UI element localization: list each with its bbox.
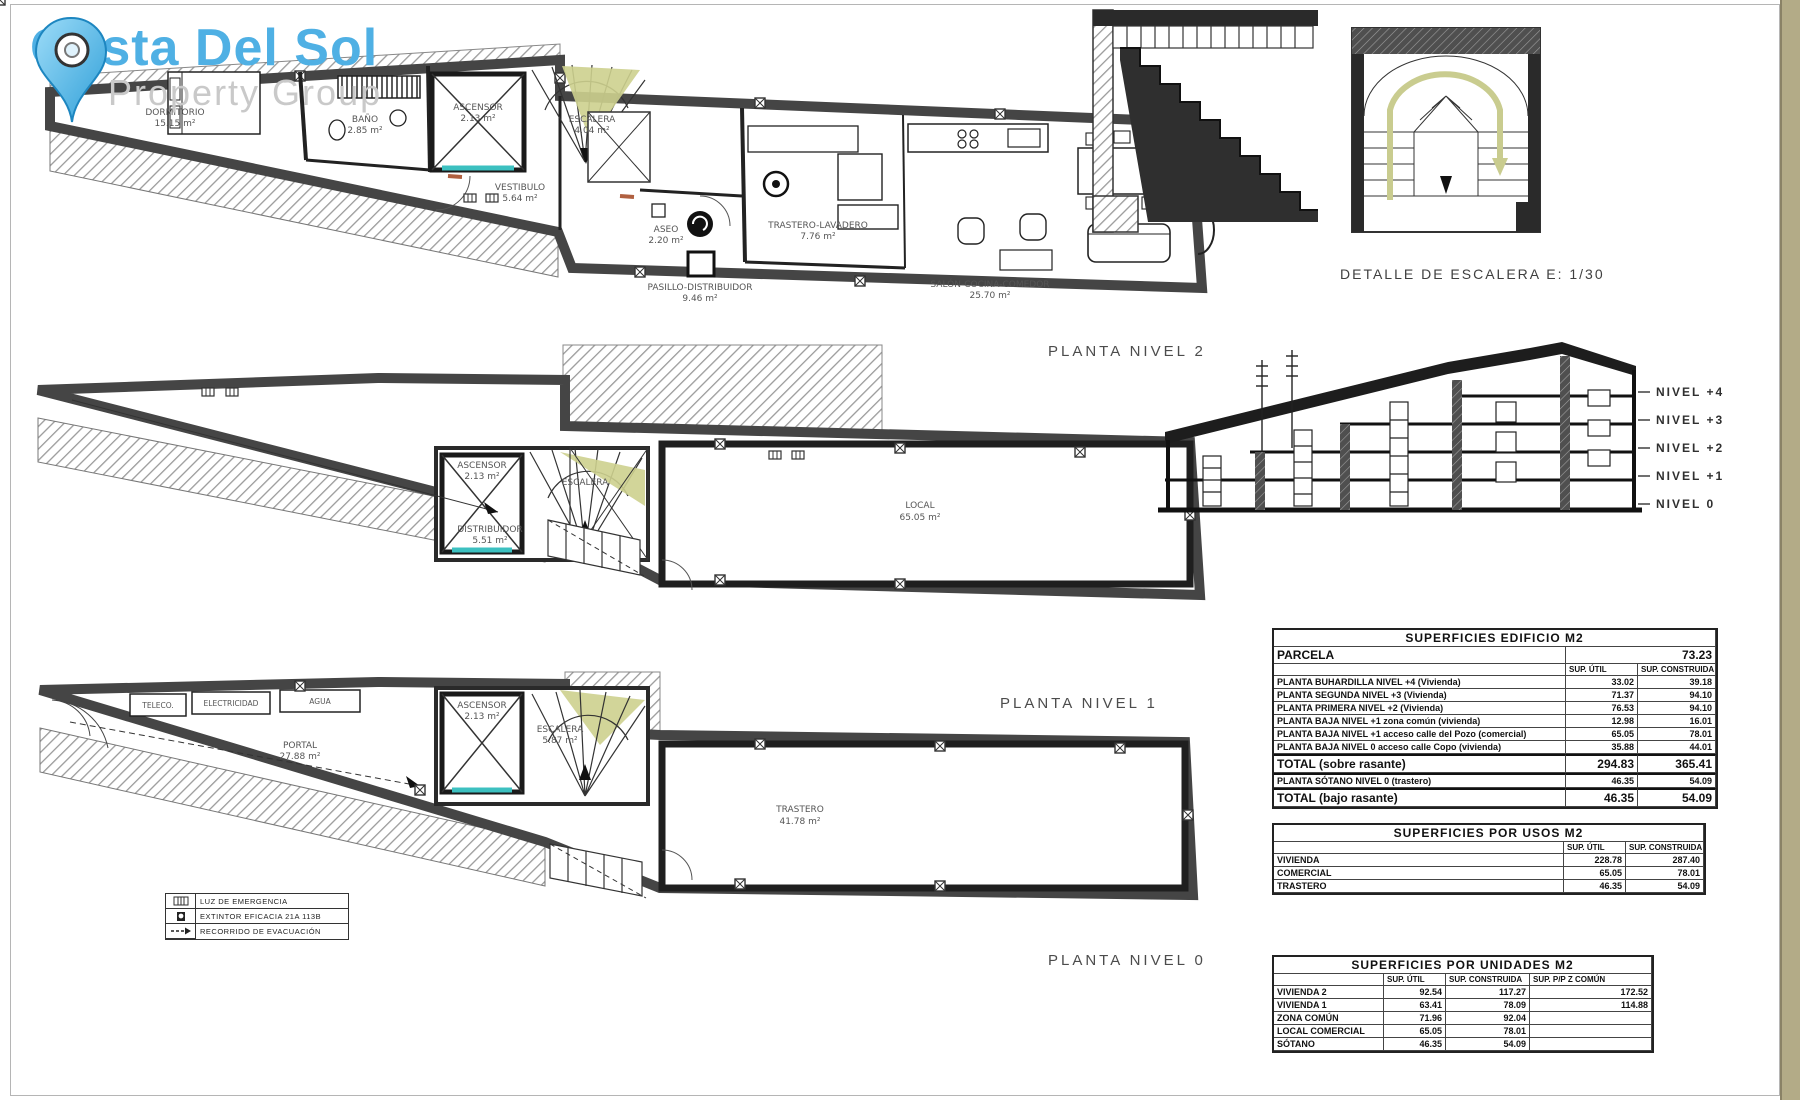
table-row: ZONA COMÚN bbox=[1274, 1012, 1384, 1025]
svg-text:5.87 m²: 5.87 m² bbox=[542, 736, 578, 746]
svg-text:65.05 m²: 65.05 m² bbox=[899, 513, 940, 523]
svg-text:5.64 m²: 5.64 m² bbox=[502, 194, 538, 204]
table-row: TRASTERO bbox=[1274, 880, 1564, 893]
svg-text:2.20 m²: 2.20 m² bbox=[648, 236, 684, 246]
room-label: PASILLO-DISTRIBUIDOR bbox=[647, 283, 752, 293]
table-title: SUPERFICIES POR UNIDADES M2 bbox=[1274, 957, 1652, 974]
map-pin-icon bbox=[26, 14, 116, 129]
legend: LUZ DE EMERGENCIA EXTINTOR EFICACIA 21A … bbox=[165, 893, 349, 940]
table-row: PLANTA SÓTANO NIVEL 0 (trastero) bbox=[1274, 773, 1566, 788]
table-superficies-usos: SUPERFICIES POR USOS M2 SUP. ÚTIL SUP. C… bbox=[1272, 823, 1706, 895]
svg-text:27.88 m²: 27.88 m² bbox=[279, 752, 320, 762]
legend-item-label: LUZ DE EMERGENCIA bbox=[196, 894, 348, 909]
table-row: PLANTA BAJA NIVEL +1 acceso calle del Po… bbox=[1274, 728, 1566, 741]
room-label: TRASTERO bbox=[775, 805, 824, 815]
plan-level1-label: PLANTA NIVEL 1 bbox=[1000, 695, 1158, 712]
building-section bbox=[1158, 342, 1650, 510]
svg-text:5.51 m²: 5.51 m² bbox=[472, 536, 508, 546]
room-label: ESCALERA bbox=[537, 725, 584, 735]
table-row: PLANTA PRIMERA NIVEL +2 (Vivienda) bbox=[1274, 702, 1566, 715]
emergency-light-icon bbox=[166, 894, 196, 909]
stair-detail-caption: DETALLE DE ESCALERA E: 1/30 bbox=[1340, 266, 1605, 282]
room-label: AGUA bbox=[309, 697, 331, 706]
svg-text:4.04 m²: 4.04 m² bbox=[574, 126, 610, 136]
room-label: ELECTRICIDAD bbox=[204, 699, 259, 708]
table-row: PLANTA SEGUNDA NIVEL +3 (Vivienda) bbox=[1274, 689, 1566, 702]
section-level-2: NIVEL +2 bbox=[1656, 441, 1724, 455]
table-title: SUPERFICIES EDIFICIO M2 bbox=[1274, 630, 1716, 647]
page-edge-strip bbox=[1780, 0, 1800, 1100]
table-row: VIVIENDA 1 bbox=[1274, 999, 1384, 1012]
table-title: SUPERFICIES POR USOS M2 bbox=[1274, 825, 1704, 842]
svg-text:9.46 m²: 9.46 m² bbox=[682, 294, 718, 304]
section-level-3: NIVEL +3 bbox=[1656, 413, 1724, 427]
room-label: ASCENSOR bbox=[457, 461, 507, 471]
room-label: ESCALERA bbox=[569, 115, 616, 125]
table-row: PLANTA BAJA NIVEL 0 acceso calle Copo (v… bbox=[1274, 741, 1566, 754]
room-label: ESCALERA bbox=[562, 478, 609, 488]
plan-level1 bbox=[38, 345, 1200, 595]
room-label: VESTIBULO bbox=[495, 183, 545, 193]
legend-item-label: EXTINTOR EFICACIA 21A 113B bbox=[196, 909, 348, 924]
total-sobre-rasante: TOTAL (sobre rasante) bbox=[1274, 754, 1566, 773]
parcela-label: PARCELA bbox=[1274, 647, 1566, 664]
svg-text:2.13 m²: 2.13 m² bbox=[464, 472, 500, 482]
table-superficies-unidades: SUPERFICIES POR UNIDADES M2 SUP. ÚTIL SU… bbox=[1272, 955, 1654, 1053]
table-row: PLANTA BUHARDILLA NIVEL +4 (Vivienda) bbox=[1274, 676, 1566, 689]
svg-text:2.85 m²: 2.85 m² bbox=[347, 126, 383, 136]
table-row: VIVIENDA bbox=[1274, 854, 1564, 867]
plan-level0-label: PLANTA NIVEL 0 bbox=[1048, 952, 1206, 969]
room-label: LOCAL bbox=[905, 501, 934, 511]
svg-text:41.78 m²: 41.78 m² bbox=[779, 817, 820, 827]
stair-detail-u bbox=[1352, 28, 1540, 232]
logo-subtitle: Property Group bbox=[108, 72, 382, 114]
table-row: COMERCIAL bbox=[1274, 867, 1564, 880]
extinguisher-icon bbox=[166, 909, 196, 924]
room-label: DISTRIBUIDOR bbox=[457, 525, 522, 535]
room-label: ASCENSOR bbox=[457, 701, 507, 711]
plan-level2-label: PLANTA NIVEL 2 bbox=[1048, 343, 1206, 360]
table-row: VIVIENDA 2 bbox=[1274, 986, 1384, 999]
room-label: TRASTERO-LAVADERO bbox=[767, 221, 868, 231]
table-row: PLANTA BAJA NIVEL +1 zona común (viviend… bbox=[1274, 715, 1566, 728]
section-level-1: NIVEL +1 bbox=[1656, 469, 1724, 483]
table-superficies-edificio: SUPERFICIES EDIFICIO M2 PARCELA 73.23 SU… bbox=[1272, 628, 1718, 809]
room-label: TELECO. bbox=[141, 701, 173, 710]
col-header-construida: SUP. CONSTRUIDA bbox=[1638, 664, 1716, 676]
svg-text:7.76 m²: 7.76 m² bbox=[800, 232, 836, 242]
section-level-0: NIVEL 0 bbox=[1656, 497, 1715, 511]
room-label: ASEO bbox=[654, 225, 679, 235]
plan-sheet: DORMITORIO 15.15 m² BAÑO 2.85 m² ASCENSO… bbox=[0, 0, 1800, 1100]
col-header-util: SUP. ÚTIL bbox=[1566, 664, 1638, 676]
room-label: SALÓN-COCINA-COMEDOR bbox=[930, 278, 1049, 290]
evacuation-route-icon bbox=[166, 924, 196, 939]
logo: Costa Del Sol Property Group bbox=[8, 6, 568, 126]
parcela-value: 73.23 bbox=[1566, 647, 1716, 664]
svg-text:2.13 m²: 2.13 m² bbox=[464, 712, 500, 722]
room-label: PORTAL bbox=[283, 741, 317, 751]
table-row: SÓTANO bbox=[1274, 1038, 1384, 1051]
legend-item-label: RECORRIDO DE EVACUACIÓN bbox=[196, 924, 348, 939]
section-level-4: NIVEL +4 bbox=[1656, 385, 1724, 399]
svg-text:25.70 m²: 25.70 m² bbox=[969, 291, 1010, 301]
table-row: LOCAL COMERCIAL bbox=[1274, 1025, 1384, 1038]
total-bajo-rasante: TOTAL (bajo rasante) bbox=[1274, 788, 1566, 807]
